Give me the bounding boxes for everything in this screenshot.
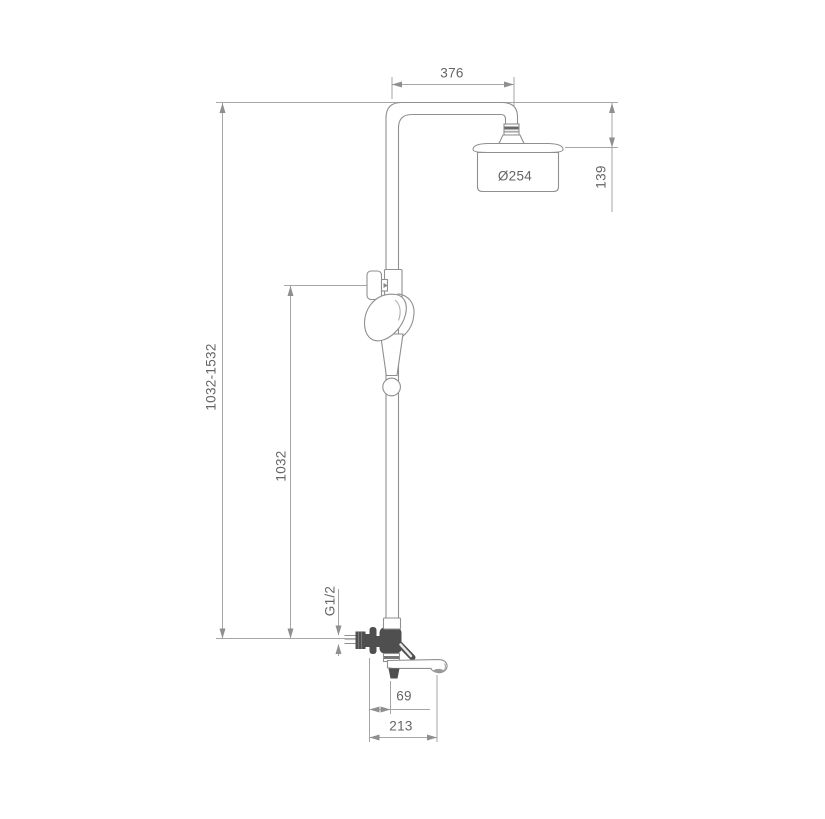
arrow-376-right <box>504 82 514 88</box>
dim-label-head-diameter: Ø254 <box>498 169 532 183</box>
head-top-disc <box>473 144 563 153</box>
head-connector-nut-band2 <box>505 131 519 133</box>
arrow-pipe-height-top <box>288 286 294 296</box>
dim-label-head-drop: 139 <box>594 165 608 188</box>
technical-drawing-canvas <box>0 0 825 819</box>
spout-under-nut <box>389 668 400 678</box>
technical-drawing-page: 376 Ø254 139 1032-1532 1032 G1/2 69 213 <box>0 0 825 819</box>
valve-body <box>380 628 402 654</box>
arrow-376-left <box>392 82 402 88</box>
dim-label-spout-offset: 69 <box>396 689 412 703</box>
valve-neck-band <box>384 656 399 659</box>
arrow-g12-top <box>336 626 342 636</box>
pipe-collar <box>384 618 401 629</box>
arrow-139-bottom <box>609 138 615 148</box>
arrow-213-right <box>427 735 437 741</box>
arrow-pipe-height-bottom <box>288 629 294 639</box>
head-connector-cone <box>499 135 524 144</box>
spout-outlet-shade <box>434 669 444 673</box>
dim-label-spout-reach: 213 <box>389 719 412 733</box>
dim-label-inlet-thread: G1/2 <box>323 586 337 616</box>
dim-label-pipe-height: 1032 <box>274 450 288 481</box>
dim-label-top-width: 376 <box>440 66 463 80</box>
arrow-69-right <box>381 707 391 713</box>
arrow-height-range-top <box>220 103 226 113</box>
arrow-139-top <box>609 103 615 113</box>
head-connector-nut-band <box>505 127 519 130</box>
bracket-knob <box>367 271 382 300</box>
arrow-69-left <box>370 707 380 713</box>
arrow-g12-bottom <box>336 644 342 654</box>
mixer-valve-assembly <box>345 618 448 679</box>
arrow-213-left <box>370 735 380 741</box>
arrow-height-range-bottom <box>220 629 226 639</box>
hose-connector-ball <box>383 378 401 396</box>
inlet-nut <box>356 632 366 650</box>
dim-label-height-range: 1032-1532 <box>204 343 218 410</box>
